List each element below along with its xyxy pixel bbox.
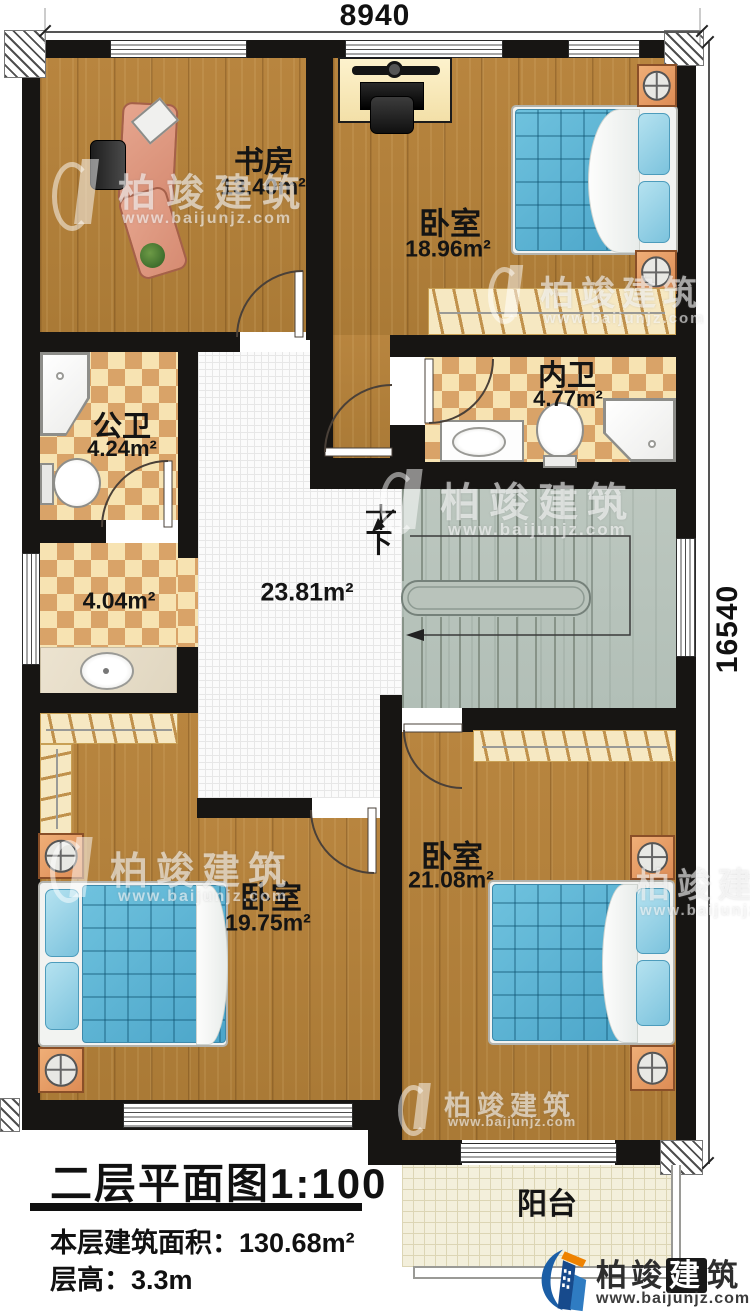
bath-inner-door-leaf: [425, 359, 433, 423]
dimension-line-right: [708, 42, 710, 1164]
study-door-arc: [237, 271, 303, 337]
brand-name-prefix: 柏竣: [596, 1258, 666, 1293]
title-underline: [30, 1203, 362, 1211]
bedroom-right-door-leaf: [404, 724, 462, 732]
bedroom-left-door-arc: [311, 810, 374, 873]
bedroom-top-door-leaf: [325, 448, 392, 456]
watermark-text: 柏竣建筑: [110, 840, 294, 895]
balcony-label: 阳台: [517, 1179, 577, 1223]
watermark-url: www.baijunjz.com: [448, 1114, 576, 1129]
floor-plan-sheet: 书房 13.40m² 卧室 18.96m² 内卫 4.77m² 公卫 4.24m…: [0, 0, 750, 1316]
floor-height-text: 层高：3.3m: [50, 1258, 193, 1297]
brand-logo-icon: [536, 1246, 590, 1312]
bath-public-area: 4.24m²: [87, 436, 157, 462]
bath-public-door-arc: [102, 461, 168, 527]
watermark-url: www.baijunjz.com: [544, 310, 705, 327]
watermark-url: www.baijunjz.com: [640, 902, 750, 919]
bedroom-left-door-leaf: [368, 808, 376, 873]
watermark-logo-icon: [398, 1082, 438, 1130]
watermark-url: www.baijunjz.com: [118, 888, 288, 906]
plan-title: 二层平面图1:100: [50, 1150, 387, 1211]
bath-public-door-leaf: [164, 461, 172, 527]
study-door-leaf: [295, 271, 303, 337]
watermark-text: 柏竣建筑: [540, 266, 704, 315]
brand-name: 柏竣建筑: [596, 1250, 742, 1295]
watermark-logo-icon: [488, 264, 532, 318]
watermark-url: www.baijunjz.com: [122, 210, 292, 228]
bath-inner-door-arc: [429, 359, 493, 423]
dressing-area: 4.04m²: [83, 588, 156, 615]
bath-inner-area: 4.77m²: [533, 386, 603, 412]
watermark-url: www.baijunjz.com: [448, 520, 627, 540]
bedroom-right-area: 21.08m²: [408, 867, 494, 894]
bedroom-left-area: 19.75m²: [225, 910, 311, 937]
floor-area-text: 本层建筑面积：130.68m²: [50, 1221, 355, 1260]
watermark-text: 柏竣建筑: [636, 858, 750, 907]
hall-area: 23.81m²: [260, 579, 353, 608]
plan-linework: [0, 0, 750, 1316]
watermark-logo-icon: [380, 468, 432, 530]
watermark-text: 柏竣建筑: [118, 162, 310, 217]
bedroom-top-door-arc: [325, 385, 392, 452]
bedroom-top-area: 18.96m²: [405, 236, 491, 263]
dimension-height: 16540: [711, 585, 745, 673]
brand-url: www.baijunjz.com: [596, 1290, 750, 1308]
dimension-width: 8940: [340, 0, 411, 33]
walkline-arrow-icon: [406, 629, 424, 641]
watermark-logo-icon: [50, 836, 102, 898]
brand-name-suffix: 筑: [707, 1258, 742, 1293]
bedroom-right-door-arc: [404, 730, 462, 788]
brand-name-boxed: 建: [666, 1258, 707, 1293]
stair-rail: [402, 581, 590, 615]
watermark-logo-icon: [52, 158, 110, 226]
